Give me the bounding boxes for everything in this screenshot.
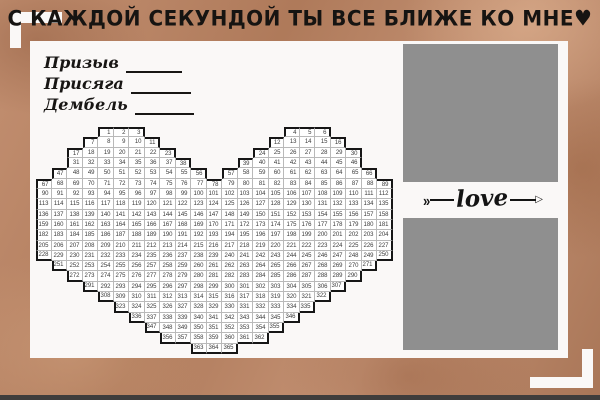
fill-in-labels: Призыв Присяга Дембель (44, 52, 194, 115)
day-cell-86: 86 (331, 179, 346, 189)
day-cell-348: 348 (160, 323, 176, 333)
day-cell-54: 54 (160, 168, 176, 179)
day-cell-5: 5 (300, 127, 315, 137)
day-cell-109: 109 (331, 189, 346, 199)
day-cell-25: 25 (269, 148, 284, 158)
day-cell-243: 243 (269, 251, 284, 261)
day-cell-161: 161 (67, 220, 83, 230)
day-cell-167: 167 (160, 220, 176, 230)
day-cell-337: 337 (145, 313, 160, 323)
day-cell-36: 36 (145, 158, 160, 168)
day-cell-155: 155 (331, 210, 346, 220)
day-cell-335: 335 (300, 302, 315, 313)
day-cell-184: 184 (67, 230, 83, 241)
bottom-edge-strip (0, 395, 600, 400)
day-cell-37: 37 (160, 158, 176, 168)
day-cell-263: 263 (238, 261, 253, 271)
day-cell-321: 321 (300, 292, 315, 302)
day-cell-225: 225 (346, 241, 362, 251)
day-cell-123: 123 (191, 199, 207, 210)
day-cell-179: 179 (346, 220, 362, 230)
day-cell-197: 197 (269, 230, 284, 241)
day-cell-334: 334 (284, 302, 300, 313)
day-cell-118: 118 (114, 199, 129, 210)
day-cell-248: 248 (346, 251, 362, 261)
day-cell-300: 300 (222, 282, 238, 292)
day-cell-333: 333 (269, 302, 284, 313)
day-cell-311: 311 (145, 292, 160, 302)
day-cell-237: 237 (176, 251, 191, 261)
day-cell-135: 135 (377, 199, 393, 210)
day-cell-230: 230 (67, 251, 83, 261)
day-cell-73: 73 (129, 179, 145, 189)
day-cell-344: 344 (253, 313, 269, 323)
day-cell-105: 105 (269, 189, 284, 199)
day-cell-304: 304 (284, 282, 300, 292)
day-cell-220: 220 (269, 241, 284, 251)
day-cell-151: 151 (269, 210, 284, 220)
label-row-dembel: Дембель (44, 94, 194, 115)
day-cell-3: 3 (129, 127, 145, 137)
day-cell-132: 132 (331, 199, 346, 210)
day-cell-80: 80 (238, 179, 253, 189)
day-cell-92: 92 (67, 189, 83, 199)
day-cell-240: 240 (222, 251, 238, 261)
day-cell-232: 232 (98, 251, 114, 261)
day-cell-282: 282 (222, 271, 238, 282)
day-cell-211: 211 (129, 241, 145, 251)
day-cell-316: 316 (222, 292, 238, 302)
day-cell-175: 175 (284, 220, 300, 230)
day-cell-48: 48 (67, 168, 83, 179)
day-cell-50: 50 (98, 168, 114, 179)
day-cell-314: 314 (191, 292, 207, 302)
day-cell-210: 210 (114, 241, 129, 251)
day-cell-172: 172 (238, 220, 253, 230)
day-cell-113: 113 (36, 199, 52, 210)
day-cell-160: 160 (52, 220, 67, 230)
day-cell-162: 162 (83, 220, 98, 230)
day-cell-131: 131 (315, 199, 331, 210)
day-cell-349: 349 (176, 323, 191, 333)
day-cell-51: 51 (114, 168, 129, 179)
day-cell-340: 340 (191, 313, 207, 323)
day-cell-129: 129 (284, 199, 300, 210)
day-cell-209: 209 (98, 241, 114, 251)
day-cell-296: 296 (160, 282, 176, 292)
day-cell-153: 153 (300, 210, 315, 220)
day-cell-66: 66 (362, 168, 377, 179)
day-cell-229: 229 (52, 251, 67, 261)
day-cell-255: 255 (114, 261, 129, 271)
day-cell-265: 265 (269, 261, 284, 271)
day-cell-365: 365 (222, 344, 238, 354)
day-cell-78: 78 (207, 179, 222, 189)
day-cell-306: 306 (315, 282, 331, 292)
day-cell-330: 330 (222, 302, 238, 313)
day-cell-67: 67 (36, 179, 52, 189)
day-cell-26: 26 (284, 148, 300, 158)
day-cell-146: 146 (191, 210, 207, 220)
day-cell-264: 264 (253, 261, 269, 271)
day-cell-85: 85 (315, 179, 331, 189)
day-cell-111: 111 (362, 189, 377, 199)
day-cell-205: 205 (36, 241, 52, 251)
day-cell-114: 114 (52, 199, 67, 210)
day-cell-163: 163 (98, 220, 114, 230)
day-cell-185: 185 (83, 230, 98, 241)
day-cell-189: 189 (145, 230, 160, 241)
day-cell-96: 96 (129, 189, 145, 199)
day-cell-233: 233 (114, 251, 129, 261)
day-cell-61: 61 (284, 168, 300, 179)
day-cell-191: 191 (176, 230, 191, 241)
day-cell-127: 127 (253, 199, 269, 210)
day-cell-45: 45 (331, 158, 346, 168)
day-cell-273: 273 (83, 271, 98, 282)
day-cell-361: 361 (238, 333, 253, 344)
day-cell-287: 287 (300, 271, 315, 282)
day-cell-355: 355 (269, 323, 284, 333)
day-cell-201: 201 (331, 230, 346, 241)
day-cell-235: 235 (145, 251, 160, 261)
day-cell-21: 21 (129, 148, 145, 158)
day-cell-46: 46 (346, 158, 362, 168)
day-cell-302: 302 (253, 282, 269, 292)
day-cell-171: 171 (222, 220, 238, 230)
day-cell-42: 42 (284, 158, 300, 168)
day-cell-215: 215 (191, 241, 207, 251)
day-cell-284: 284 (253, 271, 269, 282)
day-cell-358: 358 (191, 333, 207, 344)
day-cell-320: 320 (284, 292, 300, 302)
label-row-prisyaga: Присяга (44, 73, 194, 94)
day-cell-278: 278 (160, 271, 176, 282)
day-cell-58: 58 (238, 168, 253, 179)
day-cell-271: 271 (362, 261, 377, 271)
day-cell-319: 319 (269, 292, 284, 302)
day-cell-158: 158 (377, 210, 393, 220)
day-cell-176: 176 (300, 220, 315, 230)
day-cell-101: 101 (207, 189, 222, 199)
day-cell-324: 324 (129, 302, 145, 313)
day-cell-122: 122 (176, 199, 191, 210)
day-cell-347: 347 (145, 323, 160, 333)
day-cell-64: 64 (331, 168, 346, 179)
day-cell-327: 327 (176, 302, 191, 313)
day-cell-241: 241 (238, 251, 253, 261)
day-cell-280: 280 (191, 271, 207, 282)
day-cell-214: 214 (176, 241, 191, 251)
day-cell-2: 2 (114, 127, 129, 137)
blank-line-prisyaga (131, 78, 191, 94)
day-cell-299: 299 (207, 282, 222, 292)
day-cell-363: 363 (191, 344, 207, 354)
day-cell-212: 212 (145, 241, 160, 251)
day-cell-283: 283 (238, 271, 253, 282)
day-cell-168: 168 (176, 220, 191, 230)
day-cell-24: 24 (253, 148, 269, 158)
day-cell-6: 6 (315, 127, 331, 137)
day-cell-12: 12 (269, 137, 284, 148)
day-cell-38: 38 (176, 158, 191, 168)
day-cell-55: 55 (176, 168, 191, 179)
day-cell-341: 341 (207, 313, 222, 323)
day-cell-285: 285 (269, 271, 284, 282)
day-cell-254: 254 (98, 261, 114, 271)
day-cell-11: 11 (145, 137, 160, 148)
day-cell-208: 208 (83, 241, 98, 251)
day-cell-63: 63 (315, 168, 331, 179)
day-cell-23: 23 (160, 148, 176, 158)
day-cell-245: 245 (300, 251, 315, 261)
day-cell-183: 183 (52, 230, 67, 241)
day-cell-217: 217 (222, 241, 238, 251)
day-cell-13: 13 (284, 137, 300, 148)
day-cell-242: 242 (253, 251, 269, 261)
label-prisyaga: Присяга (44, 74, 124, 94)
day-cell-253: 253 (83, 261, 98, 271)
day-cell-125: 125 (222, 199, 238, 210)
love-script-text: love (456, 186, 509, 211)
day-cell-298: 298 (191, 282, 207, 292)
day-cell-156: 156 (346, 210, 362, 220)
day-cell-297: 297 (176, 282, 191, 292)
day-cell-195: 195 (238, 230, 253, 241)
day-cell-228: 228 (36, 251, 52, 261)
day-cell-257: 257 (145, 261, 160, 271)
photo-placeholder-top (403, 44, 558, 182)
day-cell-147: 147 (207, 210, 222, 220)
day-cell-99: 99 (176, 189, 191, 199)
day-cell-268: 268 (315, 261, 331, 271)
day-cell-69: 69 (67, 179, 83, 189)
day-cell-315: 315 (207, 292, 222, 302)
day-cell-339: 339 (176, 313, 191, 323)
arrowhead-icon: ▷ (535, 195, 543, 205)
day-cell-308: 308 (98, 292, 114, 302)
day-cell-325: 325 (145, 302, 160, 313)
day-cell-291: 291 (83, 282, 98, 292)
day-cell-139: 139 (83, 210, 98, 220)
day-cell-338: 338 (160, 313, 176, 323)
day-cell-14: 14 (300, 137, 315, 148)
day-cell-130: 130 (300, 199, 315, 210)
day-cell-119: 119 (129, 199, 145, 210)
day-cell-181: 181 (377, 220, 393, 230)
day-cell-286: 286 (284, 271, 300, 282)
day-cell-276: 276 (129, 271, 145, 282)
day-cell-71: 71 (98, 179, 114, 189)
day-cell-47: 47 (52, 168, 67, 179)
day-cell-186: 186 (98, 230, 114, 241)
day-cell-88: 88 (362, 179, 377, 189)
day-cell-202: 202 (346, 230, 362, 241)
day-cell-336: 336 (129, 313, 145, 323)
day-cell-345: 345 (269, 313, 284, 323)
day-cell-16: 16 (331, 137, 346, 148)
day-cell-293: 293 (114, 282, 129, 292)
day-cell-53: 53 (145, 168, 160, 179)
day-cell-198: 198 (284, 230, 300, 241)
day-cell-79: 79 (222, 179, 238, 189)
day-cell-97: 97 (145, 189, 160, 199)
blank-line-prizyv (126, 57, 182, 73)
day-cell-117: 117 (98, 199, 114, 210)
day-cell-149: 149 (238, 210, 253, 220)
day-cell-252: 252 (67, 261, 83, 271)
day-cell-56: 56 (191, 168, 207, 179)
day-cell-227: 227 (377, 241, 393, 251)
day-cell-27: 27 (300, 148, 315, 158)
day-cell-144: 144 (160, 210, 176, 220)
day-cell-28: 28 (315, 148, 331, 158)
day-cell-35: 35 (129, 158, 145, 168)
day-cell-236: 236 (160, 251, 176, 261)
day-cell-39: 39 (238, 158, 253, 168)
corner-bracket-bottom-right (582, 349, 593, 388)
day-cell-180: 180 (362, 220, 377, 230)
day-cell-206: 206 (52, 241, 67, 251)
day-cell-274: 274 (98, 271, 114, 282)
photo-placeholder-bottom (403, 218, 558, 350)
day-cell-19: 19 (98, 148, 114, 158)
day-cell-41: 41 (269, 158, 284, 168)
day-cell-154: 154 (315, 210, 331, 220)
day-cell-354: 354 (253, 323, 269, 333)
day-cell-294: 294 (129, 282, 145, 292)
day-cell-317: 317 (238, 292, 253, 302)
day-cell-331: 331 (238, 302, 253, 313)
day-cell-165: 165 (129, 220, 145, 230)
day-cell-250: 250 (377, 251, 393, 261)
day-cell-247: 247 (331, 251, 346, 261)
day-cell-307: 307 (331, 282, 346, 292)
day-cell-353: 353 (238, 323, 253, 333)
day-cell-350: 350 (191, 323, 207, 333)
day-cell-159: 159 (36, 220, 52, 230)
day-cell-288: 288 (315, 271, 331, 282)
arrow-shaft-right (510, 199, 536, 201)
day-cell-267: 267 (300, 261, 315, 271)
day-cell-44: 44 (315, 158, 331, 168)
day-cell-169: 169 (191, 220, 207, 230)
day-cell-81: 81 (253, 179, 269, 189)
day-cell-173: 173 (253, 220, 269, 230)
day-cell-329: 329 (207, 302, 222, 313)
day-cell-207: 207 (67, 241, 83, 251)
day-cell-246: 246 (315, 251, 331, 261)
day-cell-222: 222 (300, 241, 315, 251)
day-cell-141: 141 (114, 210, 129, 220)
day-cell-221: 221 (284, 241, 300, 251)
day-cell-95: 95 (114, 189, 129, 199)
arrow-shaft-left (430, 199, 454, 201)
day-cell-137: 137 (52, 210, 67, 220)
day-cell-204: 204 (377, 230, 393, 241)
day-cell-266: 266 (284, 261, 300, 271)
day-cell-342: 342 (222, 313, 238, 323)
day-cell-290: 290 (346, 271, 362, 282)
day-cell-272: 272 (67, 271, 83, 282)
day-cell-30: 30 (346, 148, 362, 158)
day-cell-33: 33 (98, 158, 114, 168)
blank-line-dembel (135, 99, 194, 115)
day-cell-140: 140 (98, 210, 114, 220)
day-cell-213: 213 (160, 241, 176, 251)
day-cell-89: 89 (377, 179, 393, 189)
day-cell-18: 18 (83, 148, 98, 158)
day-cell-142: 142 (129, 210, 145, 220)
day-cell-182: 182 (36, 230, 52, 241)
day-cell-100: 100 (191, 189, 207, 199)
day-cell-226: 226 (362, 241, 377, 251)
day-cell-124: 124 (207, 199, 222, 210)
day-cell-157: 157 (362, 210, 377, 220)
day-cell-295: 295 (145, 282, 160, 292)
label-prizyv: Призыв (44, 53, 119, 73)
day-cell-203: 203 (362, 230, 377, 241)
day-cell-8: 8 (98, 137, 114, 148)
day-cell-261: 261 (207, 261, 222, 271)
day-cell-323: 323 (114, 302, 129, 313)
day-cell-83: 83 (284, 179, 300, 189)
day-cell-49: 49 (83, 168, 98, 179)
day-cell-262: 262 (222, 261, 238, 271)
day-cell-360: 360 (222, 333, 238, 344)
day-cell-234: 234 (129, 251, 145, 261)
day-cell-107: 107 (300, 189, 315, 199)
day-cell-93: 93 (83, 189, 98, 199)
day-cell-303: 303 (269, 282, 284, 292)
day-cell-150: 150 (253, 210, 269, 220)
day-cell-75: 75 (160, 179, 176, 189)
day-cell-31: 31 (67, 158, 83, 168)
day-cell-187: 187 (114, 230, 129, 241)
day-cell-223: 223 (315, 241, 331, 251)
day-cell-362: 362 (253, 333, 269, 344)
day-cell-249: 249 (362, 251, 377, 261)
day-cell-269: 269 (331, 261, 346, 271)
day-cell-145: 145 (176, 210, 191, 220)
day-cell-174: 174 (269, 220, 284, 230)
day-cell-148: 148 (222, 210, 238, 220)
day-cell-193: 193 (207, 230, 222, 241)
day-cell-108: 108 (315, 189, 331, 199)
day-cell-134: 134 (362, 199, 377, 210)
day-cell-68: 68 (52, 179, 67, 189)
day-cell-138: 138 (67, 210, 83, 220)
day-cell-244: 244 (284, 251, 300, 261)
day-cell-106: 106 (284, 189, 300, 199)
day-cell-218: 218 (238, 241, 253, 251)
day-cell-104: 104 (253, 189, 269, 199)
day-cell-59: 59 (253, 168, 269, 179)
day-cell-275: 275 (114, 271, 129, 282)
day-cell-20: 20 (114, 148, 129, 158)
day-cell-136: 136 (36, 210, 52, 220)
day-cell-322: 322 (315, 292, 331, 302)
day-cell-192: 192 (191, 230, 207, 241)
day-cell-74: 74 (145, 179, 160, 189)
day-cell-126: 126 (238, 199, 253, 210)
day-cell-72: 72 (114, 179, 129, 189)
day-cell-4: 4 (284, 127, 300, 137)
day-cell-292: 292 (98, 282, 114, 292)
day-cell-239: 239 (207, 251, 222, 261)
day-cell-178: 178 (331, 220, 346, 230)
day-cell-110: 110 (346, 189, 362, 199)
